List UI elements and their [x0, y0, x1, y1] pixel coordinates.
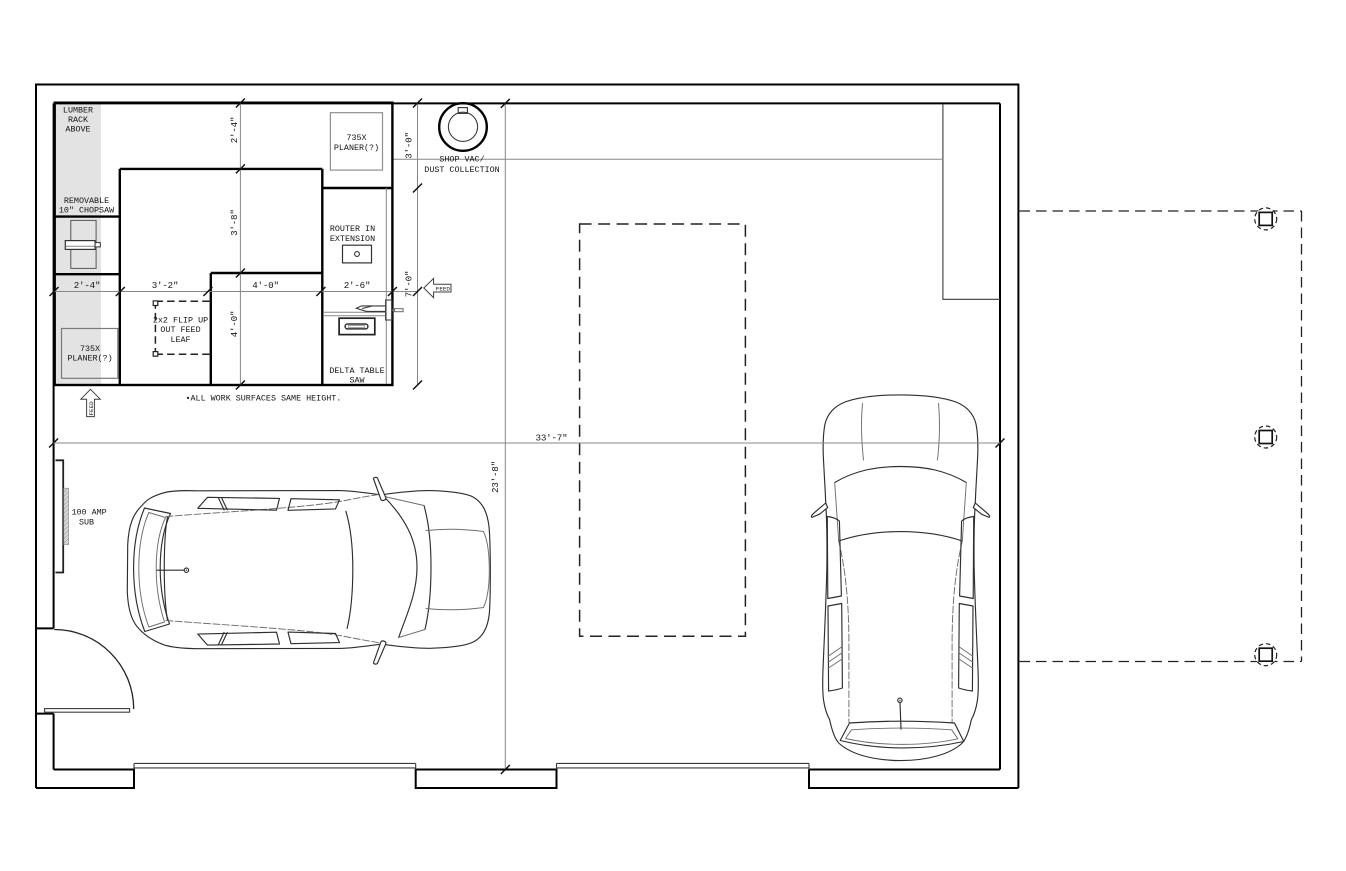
svg-text:FEED: FEED: [88, 401, 95, 416]
svg-text:LUMBER: LUMBER: [63, 105, 93, 115]
svg-text:2x2 FLIP UP: 2x2 FLIP UP: [153, 316, 208, 326]
svg-text:•ALL WORK SURFACES SAME HEIGHT: •ALL WORK SURFACES SAME HEIGHT.: [186, 393, 342, 403]
svg-text:SAW: SAW: [349, 376, 365, 386]
svg-text:OUT FEED: OUT FEED: [160, 325, 200, 335]
svg-text:ABOVE: ABOVE: [65, 124, 90, 134]
svg-text:735X: 735X: [80, 344, 100, 354]
svg-text:2'-4": 2'-4": [74, 280, 101, 291]
svg-text:LEAF: LEAF: [170, 335, 190, 345]
svg-text:3'-2": 3'-2": [152, 280, 179, 291]
svg-text:PLANER(?): PLANER(?): [334, 143, 379, 153]
svg-text:SHOP VAC/: SHOP VAC/: [439, 155, 484, 165]
svg-text:REMOVABLE: REMOVABLE: [64, 196, 109, 206]
svg-text:FEED: FEED: [436, 286, 451, 293]
svg-text:4'-0": 4'-0": [252, 280, 279, 291]
svg-text:3'-8": 3'-8": [229, 209, 240, 236]
svg-text:23'-8": 23'-8": [490, 461, 501, 493]
svg-text:4'-0": 4'-0": [229, 311, 240, 338]
svg-text:100 AMP: 100 AMP: [72, 508, 107, 518]
svg-text:2'-4": 2'-4": [229, 117, 240, 144]
svg-text:ROUTER IN: ROUTER IN: [330, 224, 375, 234]
svg-text:33'-7": 33'-7": [536, 432, 568, 443]
svg-text:7'-0": 7'-0": [404, 271, 415, 298]
svg-text:DUST COLLECTION: DUST COLLECTION: [424, 165, 499, 175]
svg-text:2'-6": 2'-6": [344, 280, 371, 291]
svg-text:DELTA TABLE: DELTA TABLE: [329, 366, 384, 376]
svg-text:SUB: SUB: [79, 518, 94, 528]
svg-text:10" CHOPSAW: 10" CHOPSAW: [59, 205, 115, 215]
svg-text:EXTENSION: EXTENSION: [330, 234, 375, 244]
svg-text:735X: 735X: [346, 133, 366, 143]
svg-text:3'-0": 3'-0": [404, 132, 415, 159]
svg-text:PLANER(?): PLANER(?): [67, 354, 112, 364]
